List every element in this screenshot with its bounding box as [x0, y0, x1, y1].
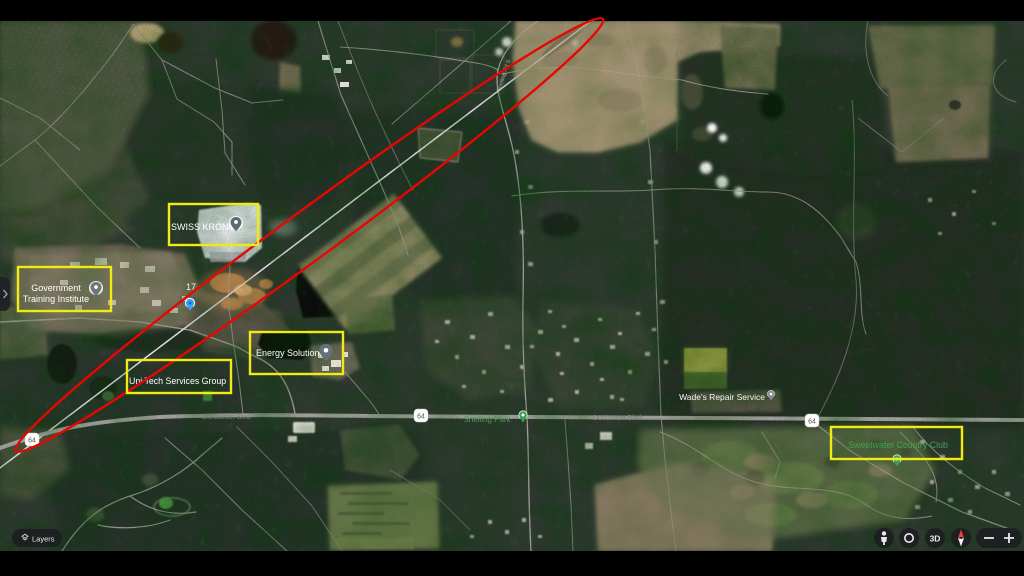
- svg-text:Layers: Layers: [32, 535, 55, 544]
- svg-text:Wade's Repair Service: Wade's Repair Service: [679, 392, 765, 402]
- svg-text:SWISS KRONO: SWISS KRONO: [171, 222, 236, 232]
- svg-text:Government: Government: [31, 283, 81, 293]
- svg-text:Energy Solutions: Energy Solutions: [256, 348, 325, 358]
- svg-text:Dunbarton Blvd: Dunbarton Blvd: [202, 414, 250, 421]
- svg-text:64: 64: [28, 438, 36, 445]
- svg-text:Dunbarton Blvd: Dunbarton Blvd: [593, 415, 641, 422]
- svg-text:Training Institute: Training Institute: [23, 294, 89, 304]
- svg-text:64: 64: [417, 414, 425, 421]
- svg-text:Snelling Park: Snelling Park: [463, 415, 511, 424]
- svg-text:Sweetwater Country Club: Sweetwater Country Club: [848, 440, 948, 450]
- svg-text:64: 64: [808, 419, 816, 426]
- svg-text:3D: 3D: [930, 534, 941, 544]
